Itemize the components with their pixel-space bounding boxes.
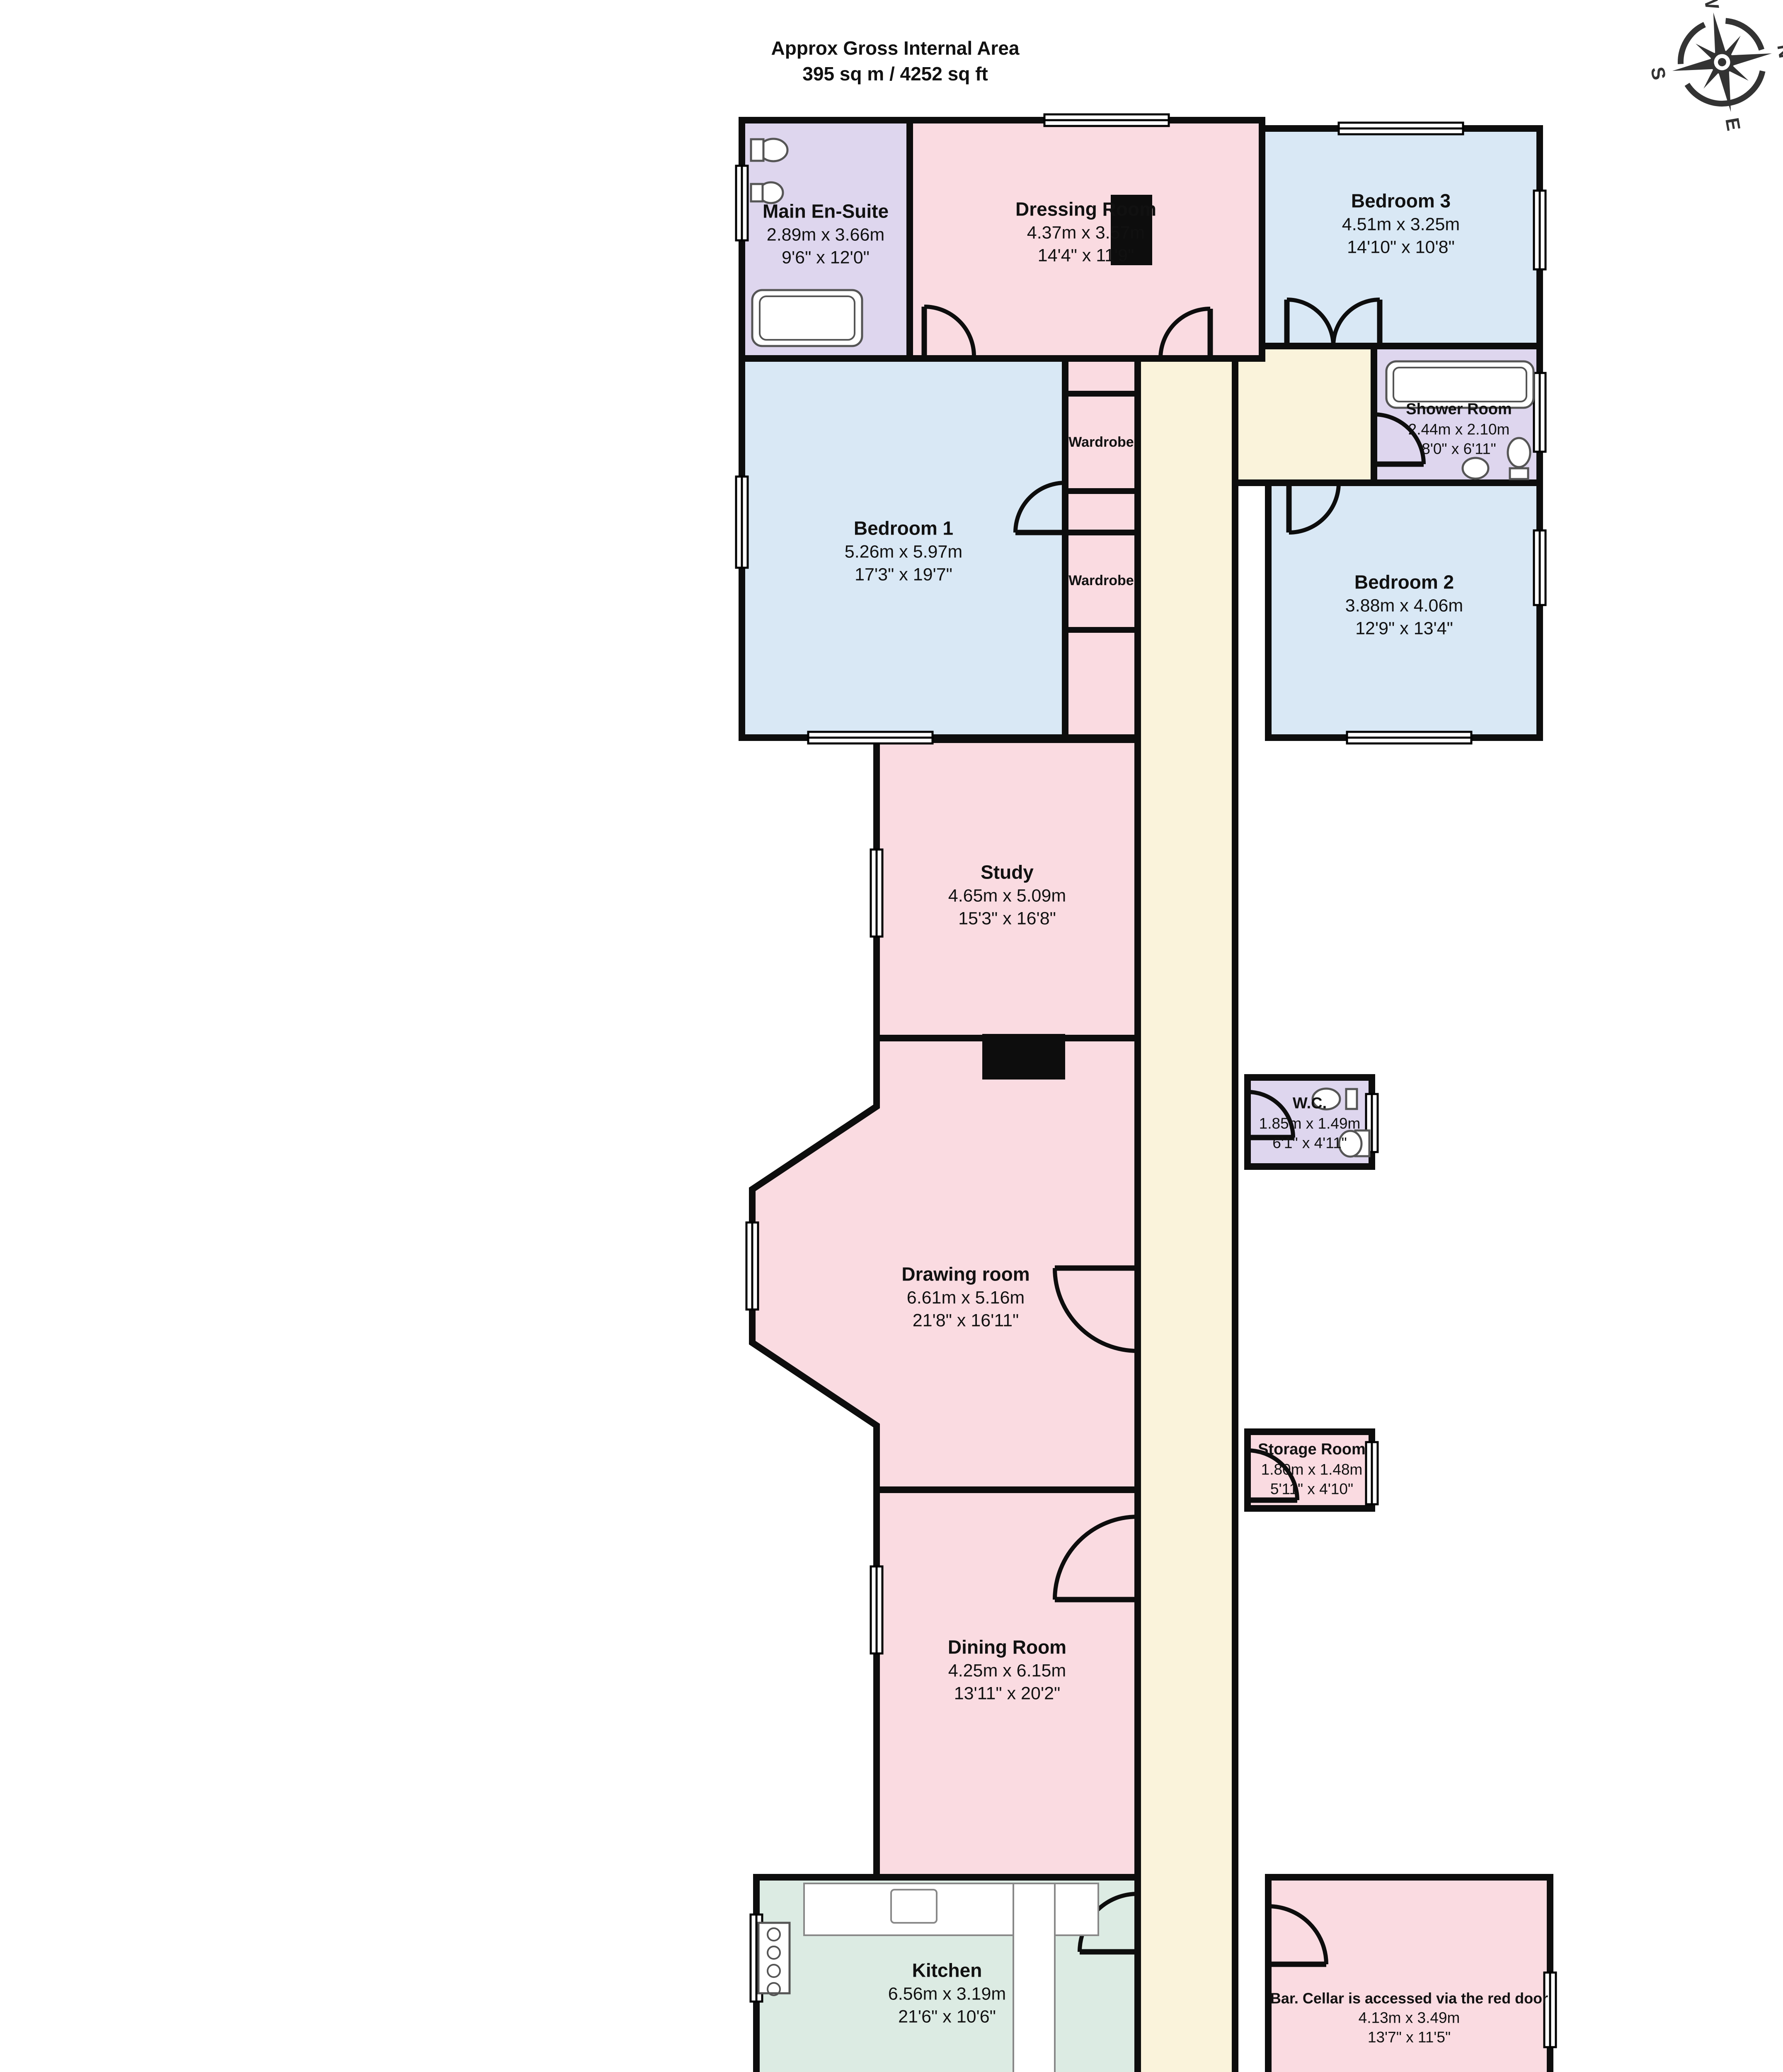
title-line2: 395 sq m / 4252 sq ft xyxy=(771,61,1019,87)
compass-e: E xyxy=(1721,116,1745,132)
label-main-ensuite: Main En-Suite 2.89m x 3.66m 9'6" x 12'0" xyxy=(763,199,889,269)
room-wardrobes xyxy=(1065,358,1138,738)
label-bedroom1: Bedroom 1 5.26m x 5.97m 17'3" x 19'7" xyxy=(845,516,962,586)
label-bedroom2: Bedroom 2 3.88m x 4.06m 12'9" x 13'4" xyxy=(1345,570,1463,640)
kitchen-hob-icon xyxy=(758,1923,790,1995)
label-bedroom3: Bedroom 3 4.51m x 3.25m 14'10" x 10'8" xyxy=(1342,189,1460,259)
page-title: Approx Gross Internal Area 395 sq m / 42… xyxy=(771,35,1019,87)
label-storage-room: Storage Room 1.80m x 1.48m 5'11" x 4'10" xyxy=(1258,1439,1366,1498)
label-shower-room: Shower Room 2.44m x 2.10m 8'0" x 6'11" xyxy=(1406,399,1512,458)
compass-s: S xyxy=(1647,65,1670,81)
label-wardrobe-bottom: Wardrobe xyxy=(1068,572,1134,590)
compass-w: W xyxy=(1699,0,1723,11)
label-study: Study 4.65m x 5.09m 15'3" x 16'8" xyxy=(948,860,1066,930)
fireplace-block xyxy=(982,1034,1065,1080)
label-drawing-room: Drawing room 6.61m x 5.16m 21'8" x 16'11… xyxy=(901,1262,1030,1332)
label-kitchen: Kitchen 6.56m x 3.19m 21'6" x 10'6" xyxy=(888,1958,1006,2028)
label-wc: W.C. 1.85m x 1.49m 6'1" x 4'11" xyxy=(1259,1093,1361,1152)
label-wardrobe-top: Wardrobe xyxy=(1068,433,1134,452)
compass-n: N xyxy=(1773,42,1783,60)
label-bar: Bar. Cellar is accessed via the red door… xyxy=(1270,1989,1548,2048)
ensuite-toilet-icon xyxy=(751,139,787,161)
compass-icon: N E S W xyxy=(1635,0,1783,143)
ensuite-bathtub-icon xyxy=(752,290,862,346)
title-line1: Approx Gross Internal Area xyxy=(771,35,1019,61)
floorplan-drawing: N E S W xyxy=(0,0,1783,2072)
label-dining-room: Dining Room 4.25m x 6.15m 13'11" x 20'2" xyxy=(948,1635,1066,1705)
floorplan: N E S W Approx Gross Internal Area 395 s… xyxy=(0,0,1783,2072)
label-dressing-room: Dressing Room 4.37m x 3.57m 14'4" x 11'9… xyxy=(1015,197,1156,267)
shower-sink-icon xyxy=(1463,458,1488,479)
